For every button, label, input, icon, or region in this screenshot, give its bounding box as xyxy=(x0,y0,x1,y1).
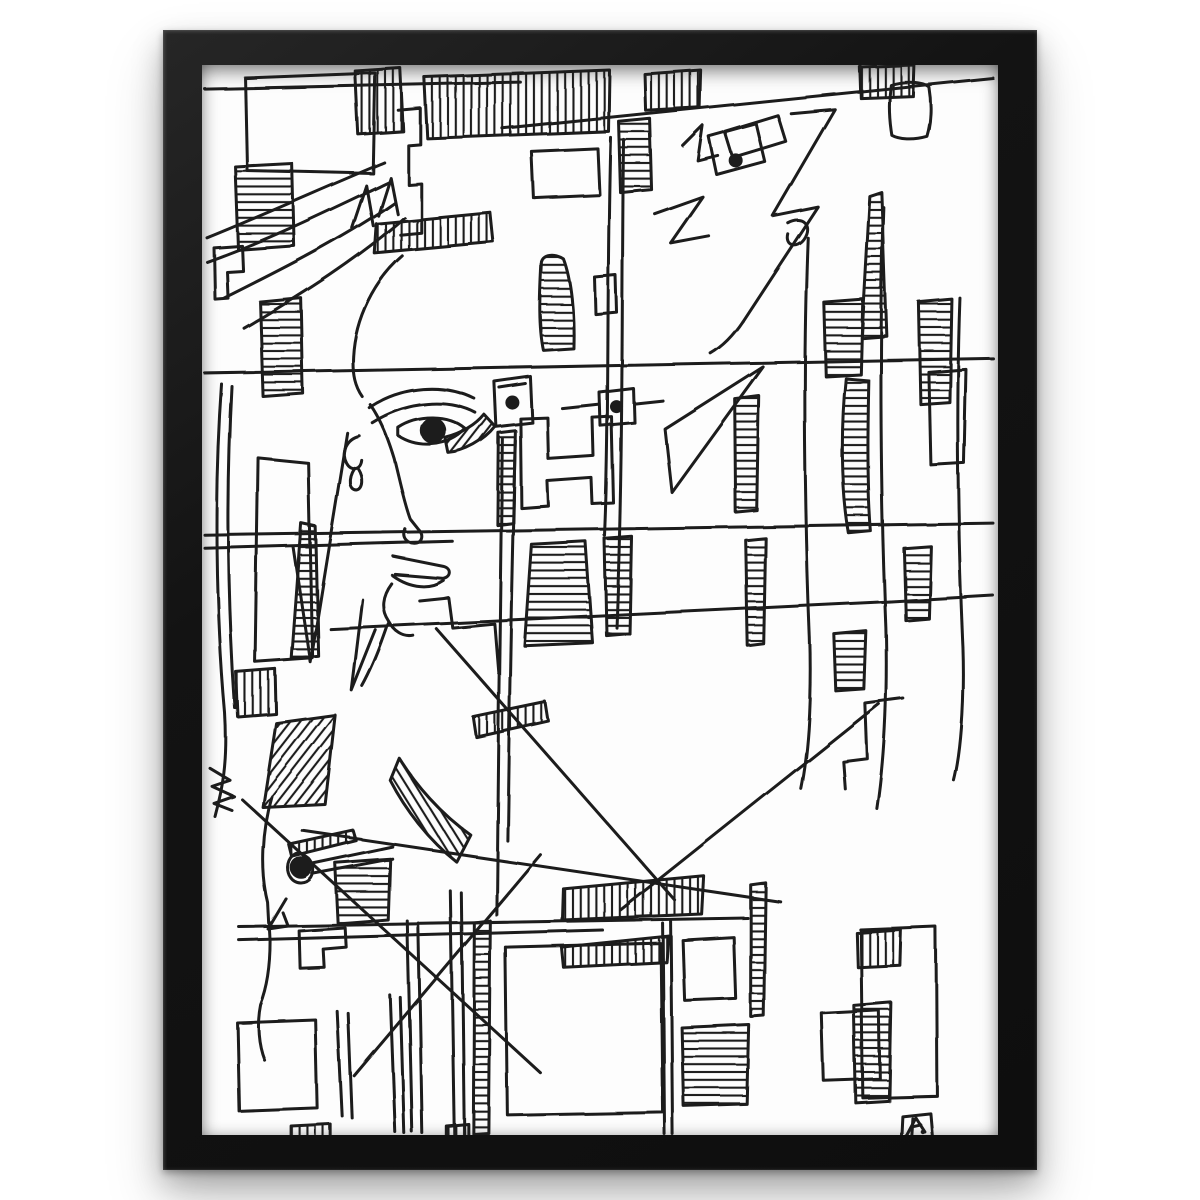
face-top-right xyxy=(655,109,835,353)
hatched-blocks xyxy=(235,65,952,1135)
artist-monogram xyxy=(901,1113,932,1135)
art-paper xyxy=(202,65,998,1135)
eye-pupil xyxy=(420,418,446,444)
line-art-drawing xyxy=(202,65,998,1135)
photo-background xyxy=(0,0,1200,1200)
picture-frame xyxy=(163,30,1037,1170)
